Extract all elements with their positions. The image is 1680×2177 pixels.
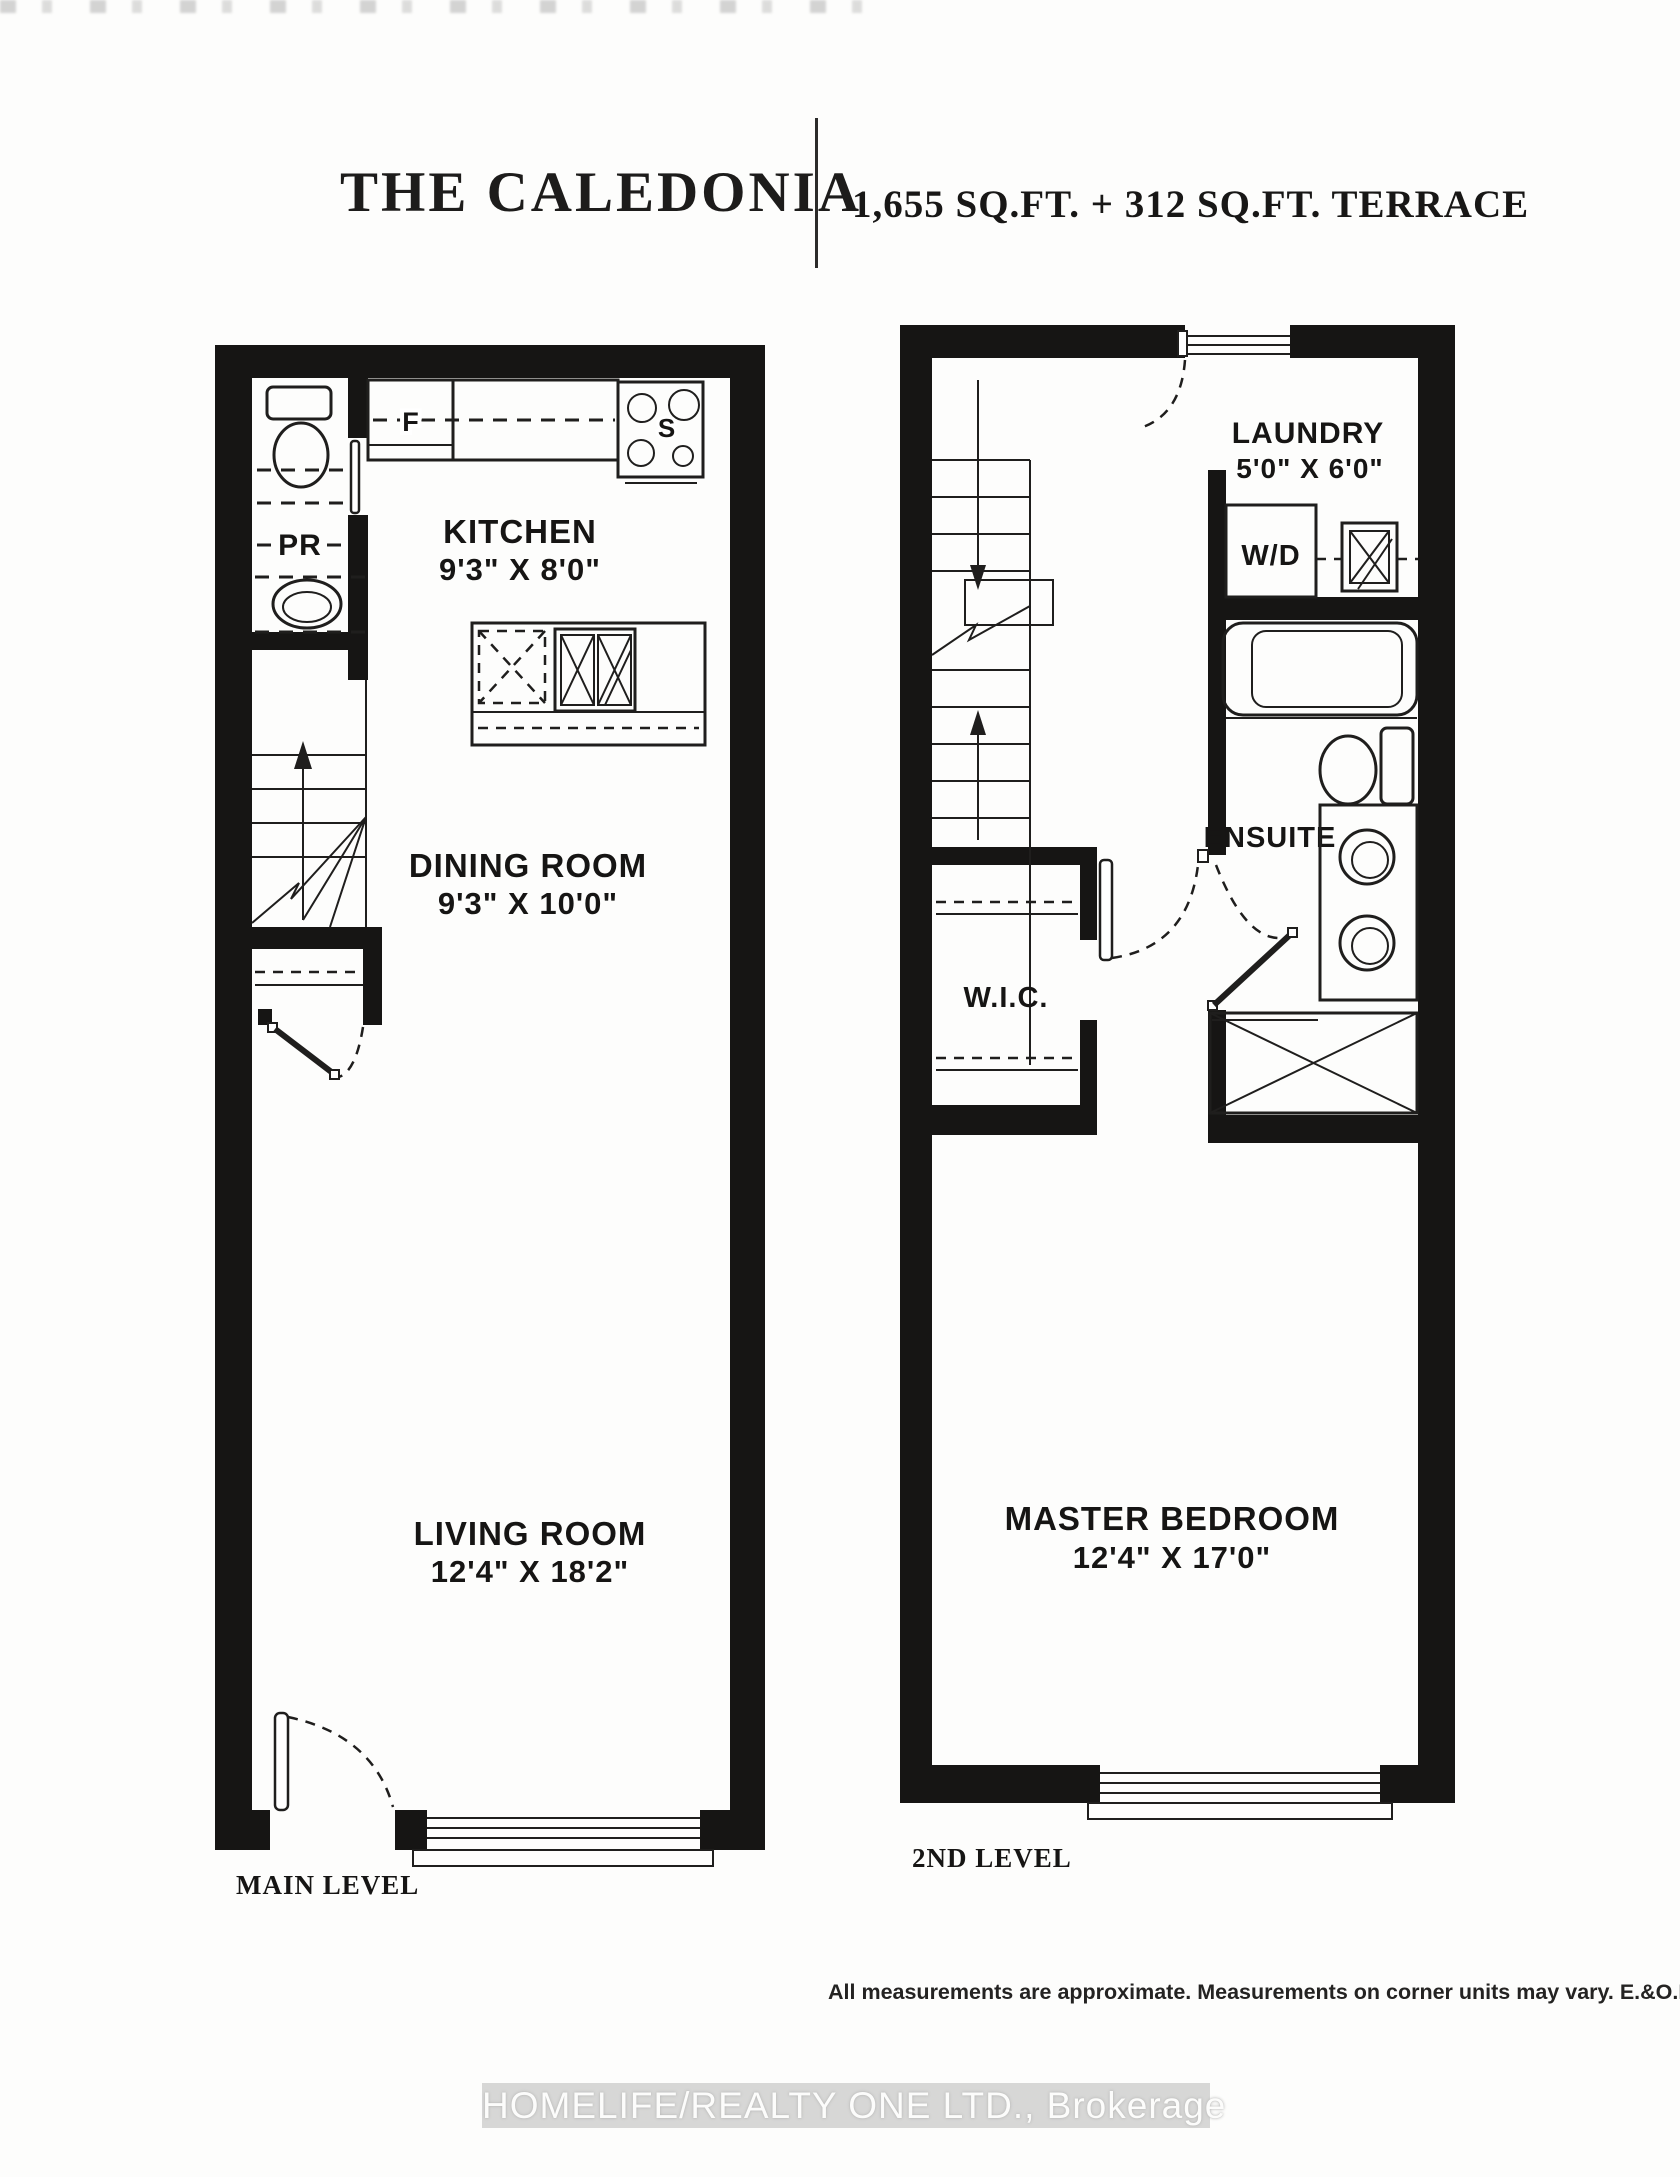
master-bedroom-window [1088,1773,1392,1819]
entry-closet [255,972,363,1079]
living-room-label: LIVING ROOM [414,1515,647,1552]
ensuite-door-leaf [1214,933,1292,1005]
second-level-floor-plan: LAUNDRY 5'0" X 6'0" W/D ENSUITE [900,325,1455,1825]
main-level-floor-plan: PR F S [215,345,765,1870]
vanity-sink [1340,916,1394,970]
upper-stairs [932,380,1053,1065]
ensuite-toilet-bowl [1320,736,1376,804]
ensuite-toilet-tank [1381,728,1413,804]
second-level-svg: LAUNDRY 5'0" X 6'0" W/D ENSUITE [900,325,1455,1825]
ensuite-bath: ENSUITE [1198,623,1417,1113]
kitchen-label: KITCHEN [443,513,597,550]
entry-door-leaf [275,1029,334,1074]
living-room-window [413,1818,713,1866]
measurements-disclaimer: All measurements are approximate. Measur… [828,1980,1518,2005]
terrace-door-swing [288,1717,393,1807]
living-room-dims: 12'4" X 18'2" [431,1554,630,1589]
master-bedroom-dims: 12'4" X 17'0" [1073,1540,1272,1575]
toilet-bowl [274,423,328,487]
second-level-walls [900,325,1455,1803]
laundry-room: LAUNDRY 5'0" X 6'0" W/D [1226,417,1418,597]
wic-door-swing [1112,865,1198,958]
unit-area-text: 1,655 SQ.FT. + 312 SQ.FT. TERRACE [852,182,1529,227]
ensuite-door-swing [1216,865,1288,938]
main-level-svg: PR F S [215,345,765,1870]
stove-burner [628,440,654,466]
powder-room-label: PR [278,529,322,562]
kitchen-island [472,623,705,745]
powder-door-leaf [351,441,359,513]
main-stairs [252,680,366,927]
brokerage-watermark: HOMELIFE/REALTY ONE LTD., Brokerage [482,2083,1210,2128]
page-title: THE CALEDONIA [340,160,862,225]
terrace-door [275,1713,393,1810]
kitchen-dims: 9'3" X 8'0" [439,552,601,587]
master-bedroom-label: MASTER BEDROOM [1005,1500,1340,1537]
laundry-dims: 5'0" X 6'0" [1236,453,1383,484]
washer-dryer-label: W/D [1241,540,1300,572]
window-sill [1088,1803,1392,1819]
fridge-label: F [402,407,420,437]
laundry-door-swing [1140,360,1185,428]
dishwasher [479,631,545,703]
wic-door-leaf [1100,860,1112,960]
entry-door-swing [339,1027,363,1077]
walk-in-closet: W.I.C. [936,860,1198,1070]
scan-artifact [0,0,880,13]
toilet-tank [267,387,331,419]
terrace-door-leaf [275,1713,288,1810]
laundry-label: LAUNDRY [1232,417,1385,450]
title-divider [815,118,818,268]
second-level-label: 2ND LEVEL [912,1843,1072,1874]
dining-room-label: DINING ROOM [409,847,647,884]
stove-label: S [658,413,676,443]
dining-room-dims: 9'3" X 10'0" [438,886,618,921]
vanity-sink [1340,830,1394,884]
stairs-down-arrow [970,565,986,590]
window-sill [413,1850,713,1866]
main-level-label: MAIN LEVEL [236,1870,419,1901]
stove-burner [628,394,656,422]
stove-burner [673,446,693,466]
ensuite-label: ENSUITE [1204,822,1337,854]
stairs-up-arrow [970,710,986,735]
wic-label: W.I.C. [964,982,1049,1014]
